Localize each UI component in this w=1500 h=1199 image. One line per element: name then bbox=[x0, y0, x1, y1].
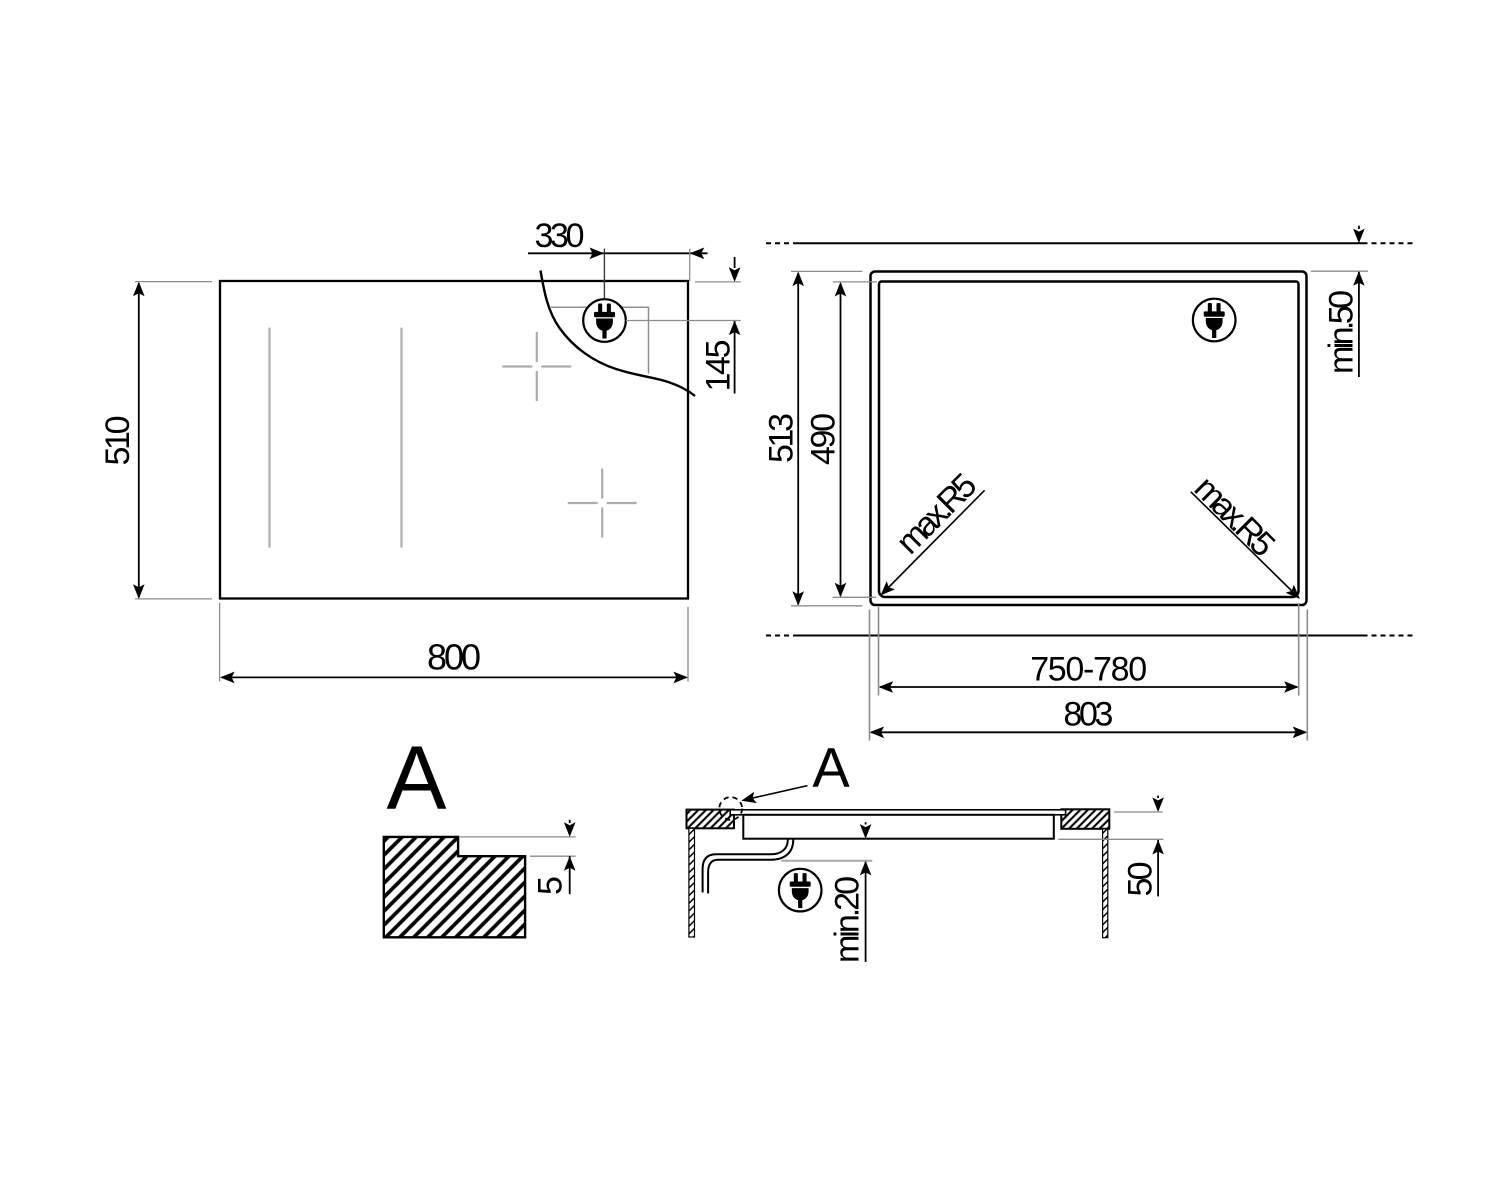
svg-text:145: 145 bbox=[700, 340, 738, 392]
svg-text:803: 803 bbox=[1063, 695, 1113, 733]
svg-text:A: A bbox=[812, 736, 850, 799]
svg-text:510: 510 bbox=[99, 416, 137, 466]
svg-text:330: 330 bbox=[535, 217, 585, 255]
svg-text:50: 50 bbox=[1122, 862, 1160, 897]
svg-text:A: A bbox=[386, 729, 446, 829]
svg-text:513: 513 bbox=[763, 413, 801, 463]
svg-text:490: 490 bbox=[805, 413, 843, 465]
svg-text:750-780: 750-780 bbox=[1030, 650, 1147, 688]
svg-text:5: 5 bbox=[532, 876, 570, 895]
svg-text:min.50: min.50 bbox=[1323, 290, 1361, 374]
svg-text:min.20: min.20 bbox=[829, 876, 867, 963]
svg-text:800: 800 bbox=[427, 636, 481, 677]
